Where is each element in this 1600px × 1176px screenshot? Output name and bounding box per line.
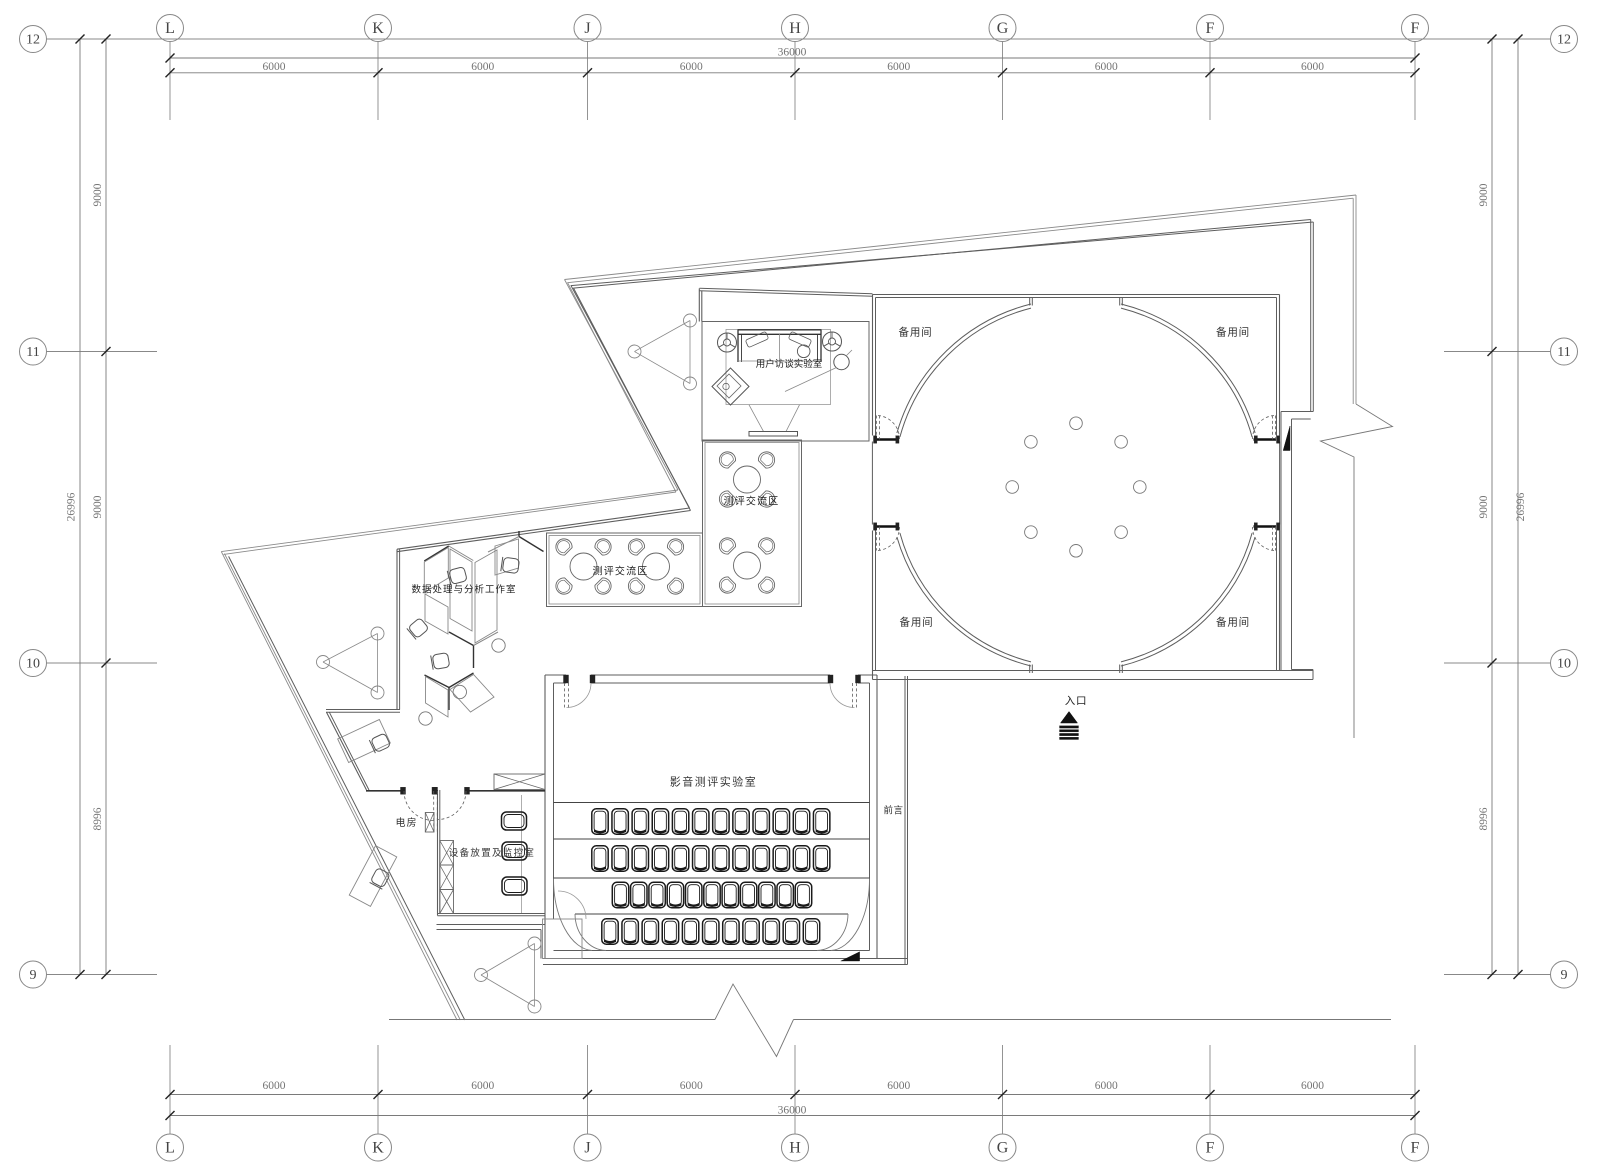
svg-text:6000: 6000 <box>680 61 703 73</box>
svg-text:电房: 电房 <box>396 816 418 829</box>
svg-text:26996: 26996 <box>1515 492 1527 521</box>
svg-text:备用间: 备用间 <box>1216 326 1250 339</box>
svg-text:12: 12 <box>1557 33 1571 48</box>
svg-text:设备放置及监控室: 设备放置及监控室 <box>449 847 535 859</box>
svg-text:F: F <box>1206 20 1215 37</box>
svg-text:6000: 6000 <box>1095 1080 1118 1092</box>
svg-text:10: 10 <box>26 657 40 672</box>
svg-text:H: H <box>789 1140 801 1157</box>
svg-text:9000: 9000 <box>1478 183 1490 206</box>
svg-text:L: L <box>165 1140 175 1157</box>
svg-text:9: 9 <box>1561 968 1568 983</box>
svg-text:影音测评实验室: 影音测评实验室 <box>670 775 758 789</box>
svg-text:6000: 6000 <box>887 61 910 73</box>
svg-text:11: 11 <box>1557 345 1570 360</box>
svg-text:前言: 前言 <box>883 805 903 817</box>
svg-text:9000: 9000 <box>1478 495 1490 518</box>
svg-text:6000: 6000 <box>471 61 494 73</box>
svg-text:J: J <box>584 20 590 37</box>
svg-text:G: G <box>997 1140 1009 1157</box>
svg-text:备用间: 备用间 <box>1216 616 1250 629</box>
svg-text:6000: 6000 <box>680 1080 703 1092</box>
svg-text:F: F <box>1411 20 1420 37</box>
svg-text:K: K <box>372 20 384 37</box>
svg-text:10: 10 <box>1557 657 1571 672</box>
svg-text:9000: 9000 <box>92 183 104 206</box>
svg-text:6000: 6000 <box>1301 1080 1324 1092</box>
svg-text:26996: 26996 <box>66 492 78 521</box>
svg-text:H: H <box>789 20 801 37</box>
svg-text:入口: 入口 <box>1065 695 1088 707</box>
svg-text:用户访谈实验室: 用户访谈实验室 <box>756 358 823 370</box>
svg-text:测评交流区: 测评交流区 <box>593 565 649 578</box>
svg-text:L: L <box>165 20 175 37</box>
svg-text:36000: 36000 <box>778 47 807 59</box>
svg-text:备用间: 备用间 <box>899 326 933 339</box>
svg-text:9: 9 <box>30 968 37 983</box>
svg-text:6000: 6000 <box>263 1080 286 1092</box>
svg-text:数据处理与分析工作室: 数据处理与分析工作室 <box>411 584 516 596</box>
svg-text:F: F <box>1206 1140 1215 1157</box>
svg-text:6000: 6000 <box>1301 61 1324 73</box>
svg-text:11: 11 <box>26 345 39 360</box>
svg-text:8996: 8996 <box>92 807 104 830</box>
svg-text:8996: 8996 <box>1478 807 1490 830</box>
svg-text:9000: 9000 <box>92 495 104 518</box>
svg-text:备用间: 备用间 <box>900 616 934 629</box>
svg-text:6000: 6000 <box>1095 61 1118 73</box>
svg-text:J: J <box>584 1140 590 1157</box>
svg-text:测评交流区: 测评交流区 <box>724 495 780 508</box>
svg-text:36000: 36000 <box>778 1105 807 1117</box>
svg-text:6000: 6000 <box>471 1080 494 1092</box>
svg-text:6000: 6000 <box>263 61 286 73</box>
svg-text:12: 12 <box>26 33 40 48</box>
svg-text:F: F <box>1411 1140 1420 1157</box>
svg-text:6000: 6000 <box>887 1080 910 1092</box>
svg-text:K: K <box>372 1140 384 1157</box>
svg-text:G: G <box>997 20 1009 37</box>
